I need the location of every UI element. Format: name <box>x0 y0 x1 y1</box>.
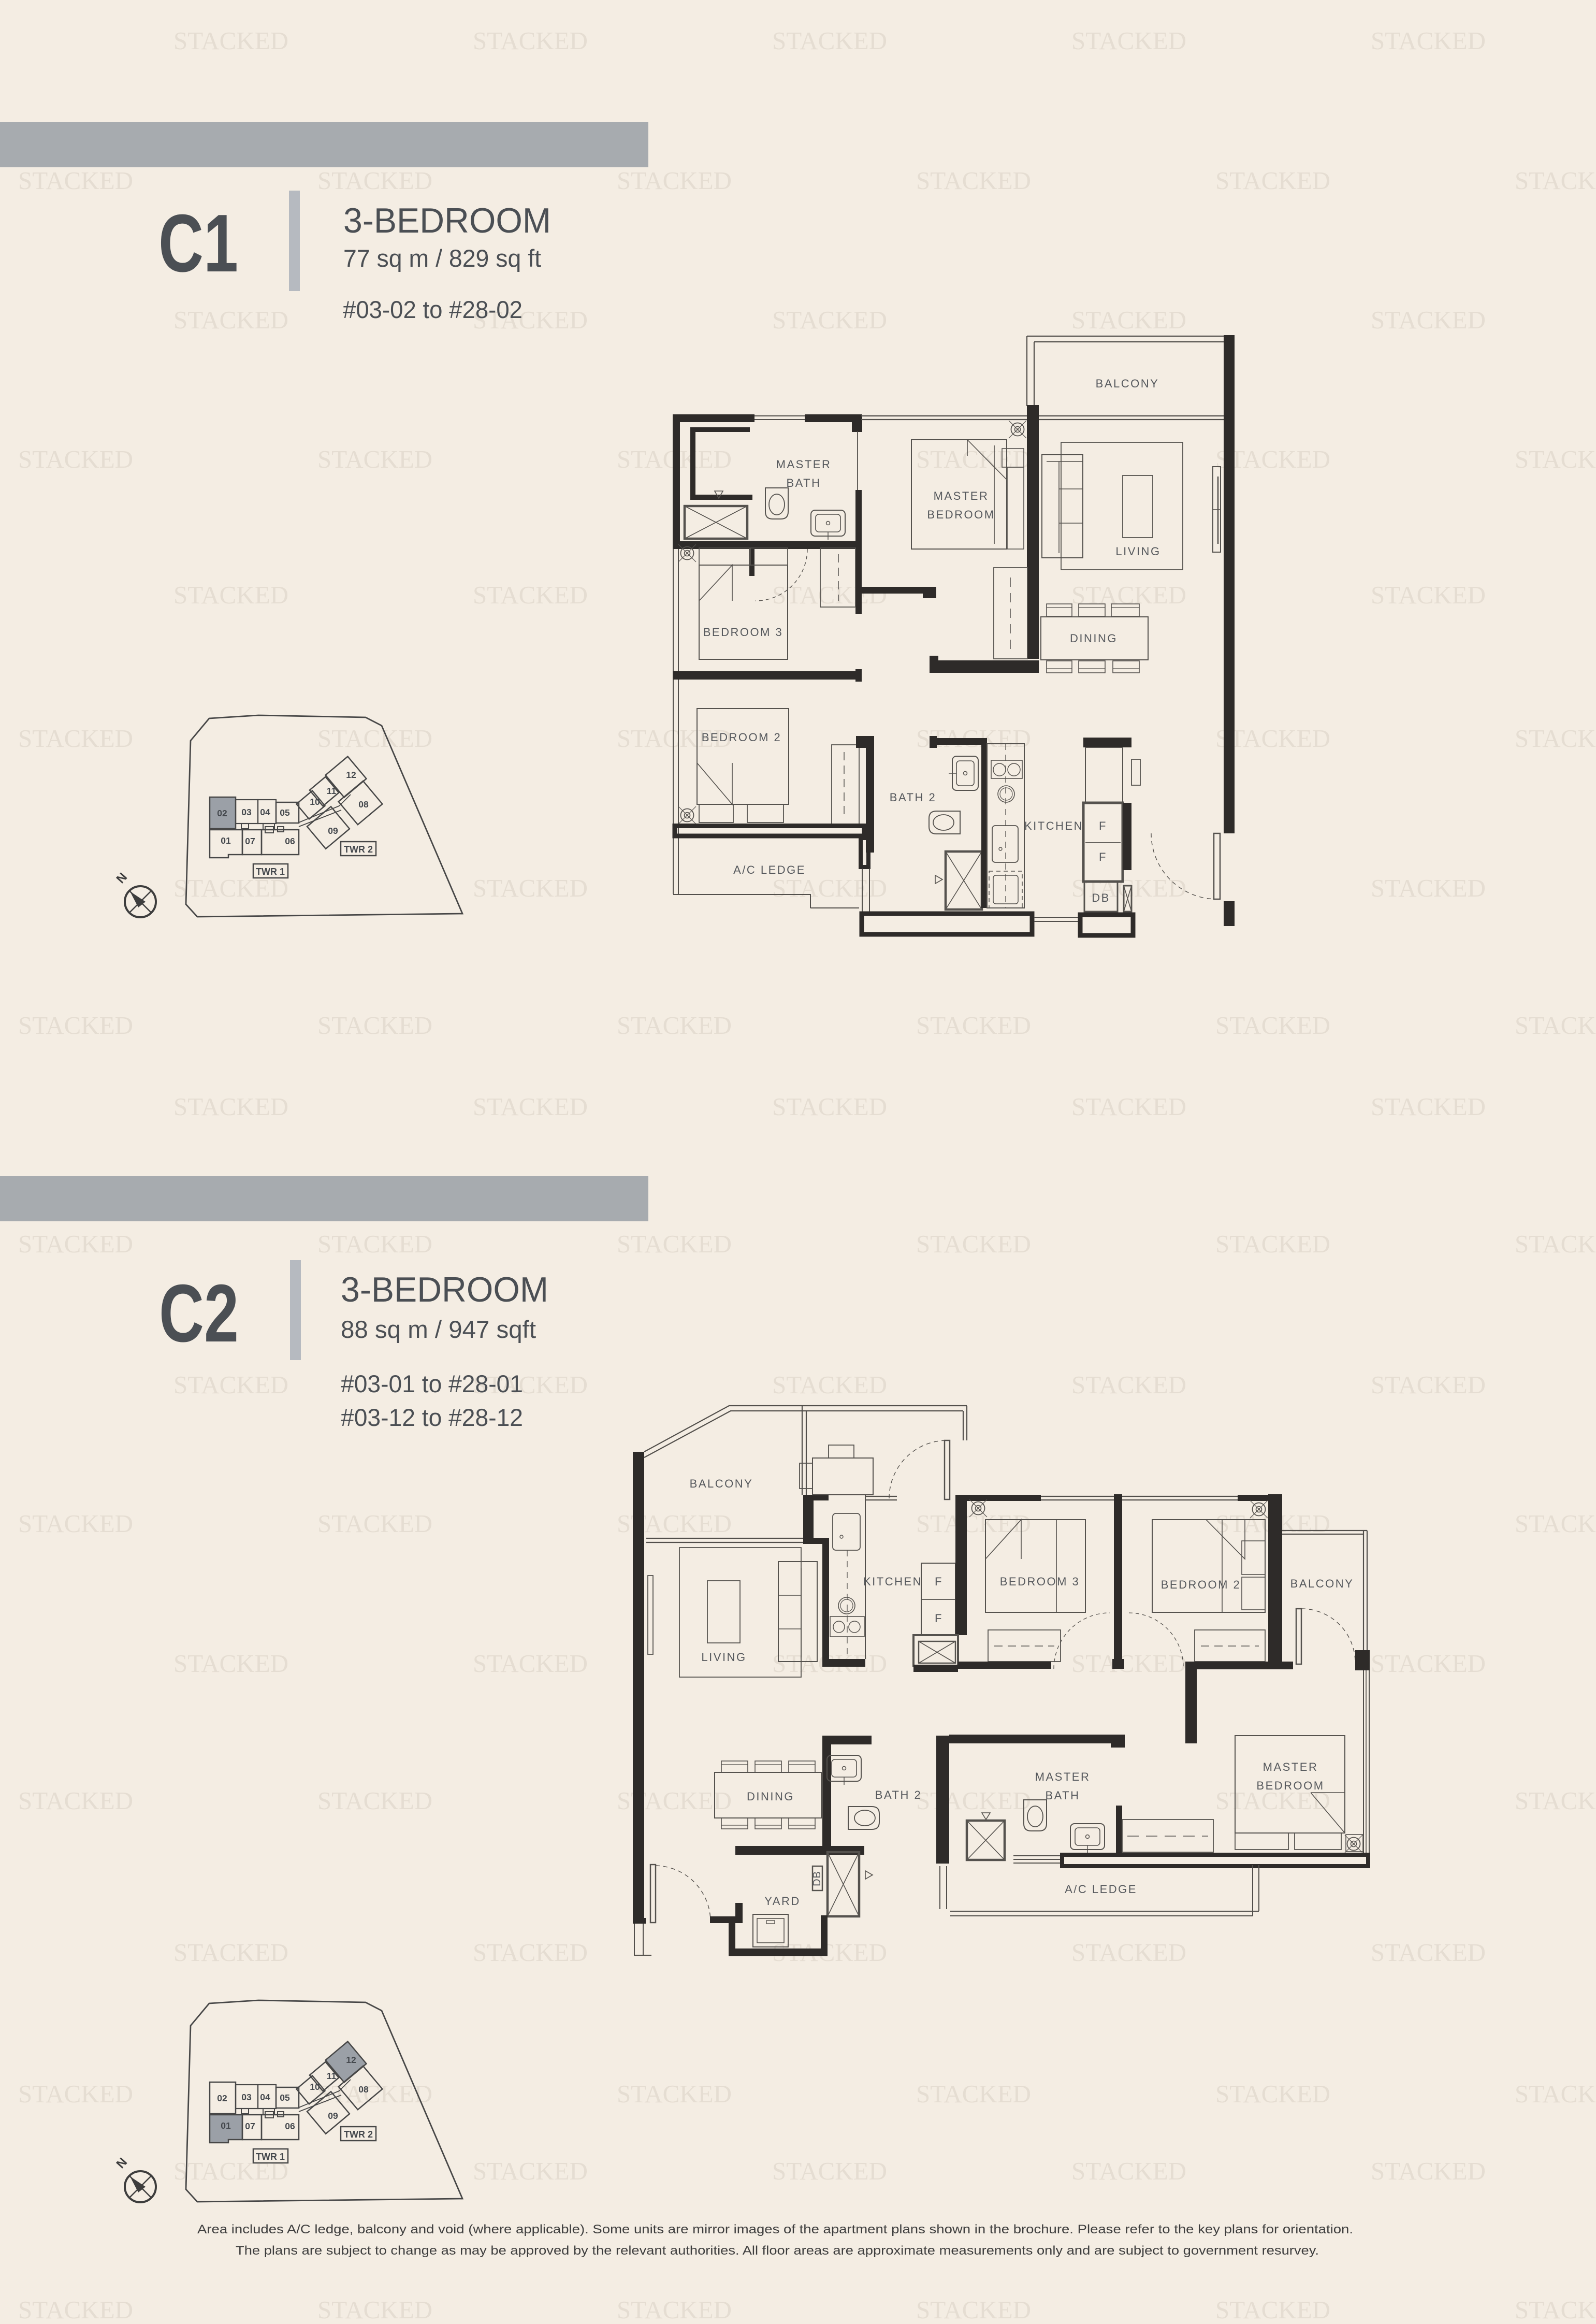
svg-text:STACKED: STACKED <box>617 2296 732 2321</box>
svg-text:STACKED: STACKED <box>617 1011 732 1040</box>
svg-text:STACKED: STACKED <box>18 2080 133 2108</box>
svg-text:STACKED: STACKED <box>772 1370 887 1399</box>
svg-text:STACKED: STACKED <box>317 166 432 195</box>
svg-text:TWR 1: TWR 1 <box>256 2152 285 2162</box>
svg-text:STACKED: STACKED <box>1371 2157 1486 2185</box>
svg-text:06: 06 <box>285 836 295 846</box>
svg-text:STACKED: STACKED <box>1515 2296 1596 2321</box>
svg-text:STACKED: STACKED <box>617 166 732 195</box>
svg-text:#03-01 to #28-01: #03-01 to #28-01 <box>341 1370 523 1397</box>
svg-text:STACKED: STACKED <box>173 1370 288 1399</box>
svg-text:STACKED: STACKED <box>473 26 588 55</box>
svg-text:STACKED: STACKED <box>1371 26 1486 55</box>
svg-text:STACKED: STACKED <box>772 26 887 55</box>
svg-text:#03-02 to #28-02: #03-02 to #28-02 <box>343 296 523 323</box>
svg-text:STACKED: STACKED <box>1215 1011 1330 1040</box>
svg-text:STACKED: STACKED <box>916 2296 1031 2321</box>
svg-text:09: 09 <box>328 826 338 836</box>
svg-text:STACKED: STACKED <box>18 445 133 473</box>
svg-text:Area includes A/C ledge, balco: Area includes A/C ledge, balcony and voi… <box>197 2222 1353 2236</box>
svg-text:BALCONY: BALCONY <box>1290 1577 1354 1590</box>
svg-text:STACKED: STACKED <box>1371 1938 1486 1967</box>
svg-text:STACKED: STACKED <box>18 724 133 753</box>
svg-text:STACKED: STACKED <box>173 1649 288 1678</box>
svg-text:09: 09 <box>328 2111 338 2121</box>
svg-text:STACKED: STACKED <box>1515 724 1596 753</box>
svg-text:STACKED: STACKED <box>1071 581 1186 609</box>
svg-text:STACKED: STACKED <box>1371 581 1486 609</box>
svg-text:BEDROOM 2: BEDROOM 2 <box>702 731 782 744</box>
svg-text:88 sq m / 947 sqft: 88 sq m / 947 sqft <box>341 1316 536 1343</box>
svg-text:DINING: DINING <box>1070 632 1118 645</box>
svg-text:STACKED: STACKED <box>18 1509 133 1538</box>
svg-text:STACKED: STACKED <box>772 306 887 334</box>
svg-text:TWR 1: TWR 1 <box>256 867 285 877</box>
svg-text:STACKED: STACKED <box>317 724 432 753</box>
svg-text:STACKED: STACKED <box>1071 1092 1186 1121</box>
svg-text:STACKED: STACKED <box>18 2296 133 2321</box>
svg-text:STACKED: STACKED <box>317 2296 432 2321</box>
svg-text:STACKED: STACKED <box>916 1011 1031 1040</box>
svg-text:BATH 2: BATH 2 <box>890 791 936 804</box>
svg-text:STACKED: STACKED <box>617 1230 732 1258</box>
svg-text:BATH: BATH <box>1045 1789 1080 1802</box>
svg-text:C2: C2 <box>159 1268 239 1359</box>
svg-text:STACKED: STACKED <box>473 2157 588 2185</box>
svg-text:STACKED: STACKED <box>173 306 288 334</box>
svg-text:06: 06 <box>285 2121 295 2131</box>
svg-text:STACKED: STACKED <box>18 1230 133 1258</box>
svg-text:YARD: YARD <box>764 1895 801 1908</box>
svg-text:F: F <box>935 1575 943 1588</box>
svg-text:BATH 2: BATH 2 <box>875 1788 922 1801</box>
svg-text:STACKED: STACKED <box>1215 2296 1330 2321</box>
svg-text:BALCONY: BALCONY <box>690 1477 753 1490</box>
svg-text:STACKED: STACKED <box>473 1938 588 1967</box>
svg-text:STACKED: STACKED <box>173 1938 288 1967</box>
svg-text:STACKED: STACKED <box>173 26 288 55</box>
svg-text:STACKED: STACKED <box>317 1786 432 1815</box>
svg-text:STACKED: STACKED <box>617 2080 732 2108</box>
svg-text:BATH: BATH <box>786 477 821 489</box>
svg-text:77 sq m / 829 sq ft: 77 sq m / 829 sq ft <box>343 244 541 272</box>
svg-text:STACKED: STACKED <box>916 445 1031 473</box>
svg-text:STACKED: STACKED <box>1071 2157 1186 2185</box>
svg-text:10: 10 <box>310 2082 320 2092</box>
svg-text:F: F <box>1099 850 1107 863</box>
svg-text:DB: DB <box>811 1871 823 1886</box>
svg-text:STACKED: STACKED <box>1371 1092 1486 1121</box>
svg-text:05: 05 <box>280 807 290 818</box>
svg-text:STACKED: STACKED <box>916 2080 1031 2108</box>
svg-text:STACKED: STACKED <box>1515 1230 1596 1258</box>
svg-text:12: 12 <box>346 2055 356 2065</box>
svg-text:STACKED: STACKED <box>1071 1370 1186 1399</box>
svg-text:KITCHEN: KITCHEN <box>863 1575 922 1588</box>
svg-text:STACKED: STACKED <box>317 1011 432 1040</box>
svg-text:STACKED: STACKED <box>1071 1649 1186 1678</box>
svg-text:05: 05 <box>280 2092 290 2103</box>
svg-text:STACKED: STACKED <box>173 581 288 609</box>
svg-text:STACKED: STACKED <box>317 1509 432 1538</box>
svg-text:F: F <box>1099 819 1107 832</box>
svg-text:#03-12 to #28-12: #03-12 to #28-12 <box>341 1404 523 1431</box>
svg-text:01: 01 <box>221 2120 231 2131</box>
svg-text:STACKED: STACKED <box>473 1092 588 1121</box>
svg-text:03: 03 <box>241 2092 252 2102</box>
svg-text:STACKED: STACKED <box>1371 306 1486 334</box>
svg-text:A/C LEDGE: A/C LEDGE <box>733 863 806 876</box>
svg-text:STACKED: STACKED <box>1071 26 1186 55</box>
svg-text:C1: C1 <box>158 198 238 289</box>
svg-text:02: 02 <box>217 808 227 818</box>
svg-text:TWR 2: TWR 2 <box>344 2129 373 2140</box>
svg-text:MASTER: MASTER <box>1035 1770 1091 1783</box>
svg-text:01: 01 <box>221 835 231 846</box>
svg-text:04: 04 <box>260 2092 270 2102</box>
svg-text:STACKED: STACKED <box>473 1649 588 1678</box>
svg-text:STACKED: STACKED <box>1515 2080 1596 2108</box>
svg-text:BEDROOM 3: BEDROOM 3 <box>1000 1575 1080 1588</box>
svg-text:07: 07 <box>245 2121 255 2131</box>
svg-text:BEDROOM 2: BEDROOM 2 <box>1161 1578 1241 1591</box>
svg-text:3-BEDROOM: 3-BEDROOM <box>343 201 551 240</box>
svg-text:12: 12 <box>346 770 356 780</box>
svg-text:STACKED: STACKED <box>1515 166 1596 195</box>
svg-text:08: 08 <box>358 2084 369 2095</box>
svg-text:11: 11 <box>327 2071 337 2081</box>
svg-text:STACKED: STACKED <box>18 1786 133 1815</box>
svg-text:STACKED: STACKED <box>473 581 588 609</box>
svg-text:STACKED: STACKED <box>1215 2080 1330 2108</box>
svg-text:DINING: DINING <box>747 1790 794 1803</box>
svg-text:The plans are subject to chang: The plans are subject to change as may b… <box>236 2244 1319 2258</box>
svg-text:STACKED: STACKED <box>1371 874 1486 902</box>
svg-text:STACKED: STACKED <box>1215 166 1330 195</box>
svg-text:STACKED: STACKED <box>1371 1370 1486 1399</box>
svg-text:STACKED: STACKED <box>18 1011 133 1040</box>
svg-text:F: F <box>935 1612 943 1625</box>
svg-text:BEDROOM: BEDROOM <box>927 508 995 521</box>
svg-text:3-BEDROOM: 3-BEDROOM <box>341 1270 548 1309</box>
svg-text:BEDROOM 3: BEDROOM 3 <box>703 626 784 639</box>
svg-text:STACKED: STACKED <box>772 581 887 609</box>
svg-text:03: 03 <box>241 807 252 817</box>
svg-text:DB: DB <box>1092 891 1110 904</box>
svg-text:STACKED: STACKED <box>317 2080 432 2108</box>
svg-text:STACKED: STACKED <box>1071 1938 1186 1967</box>
svg-text:STACKED: STACKED <box>1371 1649 1486 1678</box>
svg-text:KITCHEN: KITCHEN <box>1024 819 1083 832</box>
svg-text:TWR 2: TWR 2 <box>344 844 373 855</box>
svg-text:MASTER: MASTER <box>1263 1760 1318 1773</box>
svg-text:STACKED: STACKED <box>916 166 1031 195</box>
svg-text:STACKED: STACKED <box>1515 1786 1596 1815</box>
svg-text:STACKED: STACKED <box>1515 445 1596 473</box>
svg-text:BEDROOM: BEDROOM <box>1256 1779 1324 1792</box>
svg-text:BALCONY: BALCONY <box>1096 377 1159 390</box>
svg-text:STACKED: STACKED <box>772 2157 887 2185</box>
svg-text:A/C LEDGE: A/C LEDGE <box>1065 1883 1137 1896</box>
svg-text:STACKED: STACKED <box>1215 1230 1330 1258</box>
svg-text:08: 08 <box>358 799 369 810</box>
svg-text:STACKED: STACKED <box>473 874 588 902</box>
svg-text:MASTER: MASTER <box>776 458 832 471</box>
svg-text:STACKED: STACKED <box>18 166 133 195</box>
svg-text:LIVING: LIVING <box>1115 545 1160 558</box>
svg-text:02: 02 <box>217 2093 227 2103</box>
svg-text:07: 07 <box>245 836 255 846</box>
svg-text:STACKED: STACKED <box>916 1509 1031 1538</box>
svg-text:STACKED: STACKED <box>1071 306 1186 334</box>
svg-text:STACKED: STACKED <box>317 1230 432 1258</box>
svg-text:STACKED: STACKED <box>916 1230 1031 1258</box>
svg-text:STACKED: STACKED <box>916 1786 1031 1815</box>
svg-text:04: 04 <box>260 807 270 817</box>
svg-text:10: 10 <box>310 797 320 807</box>
svg-text:STACKED: STACKED <box>1515 1509 1596 1538</box>
svg-text:STACKED: STACKED <box>173 1092 288 1121</box>
svg-text:STACKED: STACKED <box>1515 1011 1596 1040</box>
svg-text:11: 11 <box>327 786 337 796</box>
svg-text:STACKED: STACKED <box>772 1092 887 1121</box>
svg-text:STACKED: STACKED <box>317 445 432 473</box>
svg-text:LIVING: LIVING <box>701 1651 746 1664</box>
svg-text:MASTER: MASTER <box>934 489 989 502</box>
